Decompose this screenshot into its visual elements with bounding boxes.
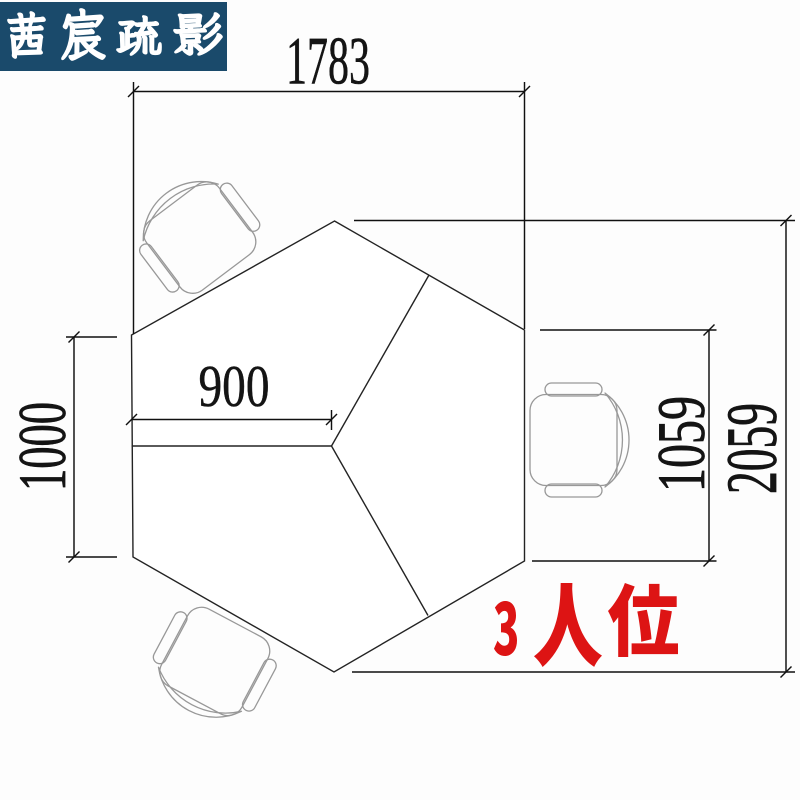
svg-text:1059: 1059	[643, 396, 719, 492]
svg-text:2059: 2059	[712, 403, 792, 494]
svg-text:1000: 1000	[4, 402, 80, 491]
svg-text:1783: 1783	[286, 23, 370, 99]
svg-text:900: 900	[199, 353, 270, 419]
